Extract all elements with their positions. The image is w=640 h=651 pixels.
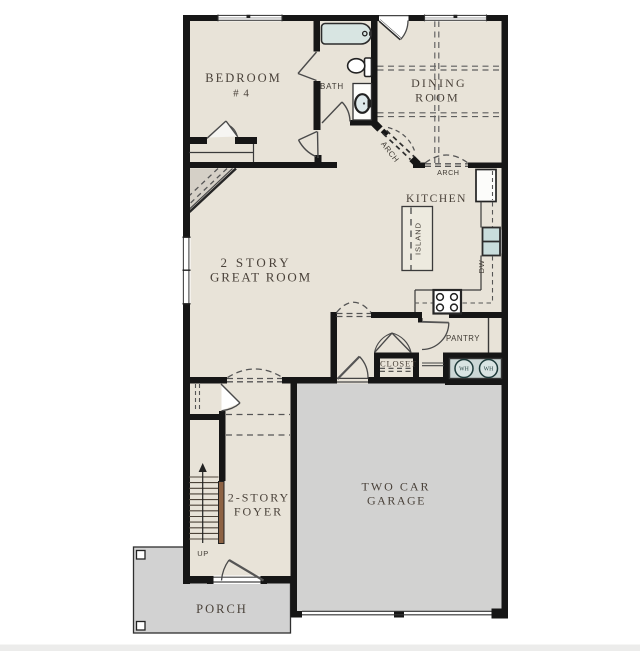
svg-text:PANTRY: PANTRY <box>446 334 480 343</box>
svg-text:WH: WH <box>459 367 469 373</box>
svg-text:DW: DW <box>477 259 486 273</box>
svg-text:CLOSET: CLOSET <box>380 359 417 369</box>
svg-text:TWO CAR: TWO CAR <box>362 480 431 494</box>
svg-text:ROOM: ROOM <box>415 91 460 105</box>
svg-text:BATH: BATH <box>320 82 344 91</box>
svg-text:FOYER: FOYER <box>234 505 283 519</box>
svg-text:2 STORY: 2 STORY <box>220 255 291 270</box>
svg-text:BEDROOM: BEDROOM <box>205 71 282 85</box>
svg-text:ISLAND: ISLAND <box>414 222 423 255</box>
svg-text:DINING: DINING <box>411 76 467 90</box>
svg-text:GARAGE: GARAGE <box>367 494 426 508</box>
svg-text:WH: WH <box>484 367 494 373</box>
svg-text:PORCH: PORCH <box>196 602 248 616</box>
svg-text:GREAT ROOM: GREAT ROOM <box>210 270 312 285</box>
svg-text:# 4: # 4 <box>233 88 250 100</box>
svg-text:KITCHEN: KITCHEN <box>406 193 467 205</box>
svg-text:ARCH: ARCH <box>437 168 459 177</box>
svg-text:UP: UP <box>197 549 208 558</box>
svg-text:2-STORY: 2-STORY <box>228 491 290 505</box>
